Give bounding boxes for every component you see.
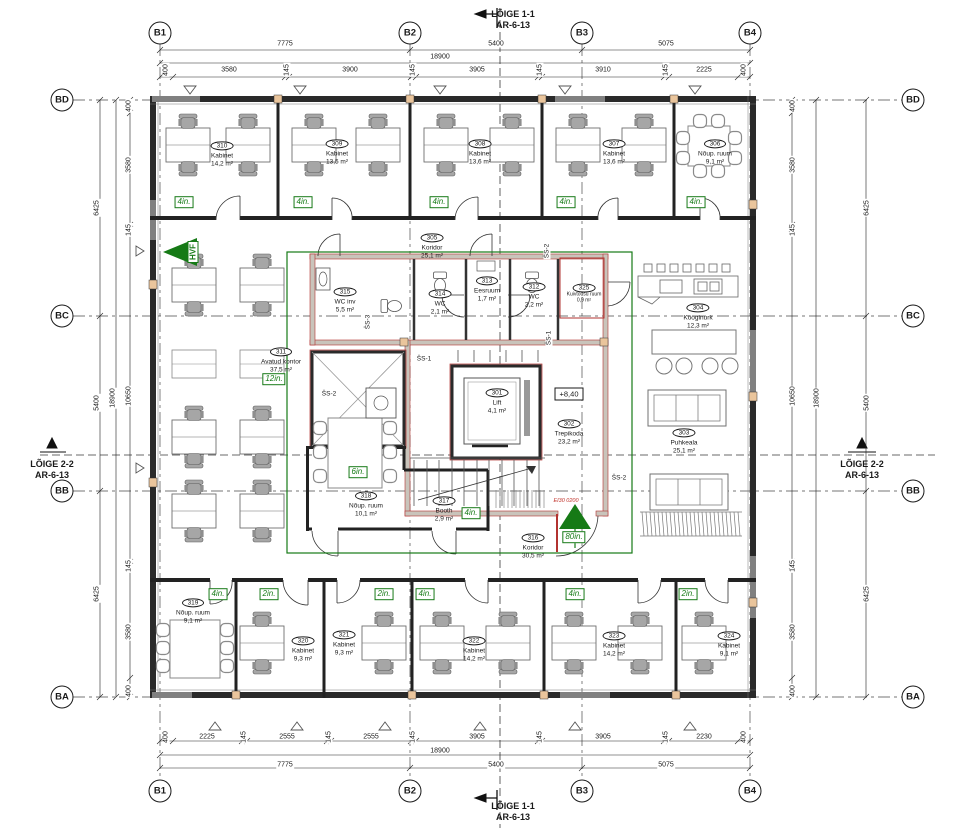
section-label-right: LÕIGE 2-2AR-6-13 (840, 459, 884, 482)
grid-bubble-ba-left: BA (51, 686, 74, 709)
room-label-315: 315WC inv5,5 m² (334, 280, 357, 313)
dim-label: 3580 (790, 156, 797, 174)
room-label-302: 302Trepikoda23,2 m² (555, 412, 584, 445)
dim-label: 400 (790, 684, 797, 698)
room-label-318: 318Nõup. ruum10,1 m² (349, 484, 383, 517)
occupancy-tag: 6in. (349, 466, 368, 478)
dim-label: 400 (741, 730, 748, 744)
dim-label: 2555 (278, 734, 296, 741)
dim-label: 7775 (276, 762, 294, 769)
hvf-marker: HVF (188, 241, 199, 263)
dim-label: 145 (126, 223, 133, 237)
room-label-312: 312WC2,2 m² (523, 275, 546, 308)
dim-label: 145 (241, 730, 248, 744)
dim-label: 145 (284, 63, 291, 77)
dim-label: 6425 (864, 199, 871, 217)
occupancy-tag: 2in. (375, 588, 394, 600)
room-label-325: 325Kuivtõusu ruum0,9 m² (567, 284, 602, 305)
dim-label: 145 (663, 730, 670, 744)
grid-bubble-bc-right: BC (902, 305, 925, 328)
dim-label: 3580 (126, 623, 133, 641)
room-label-319: 319Nõup. ruum9,1 m² (176, 591, 210, 624)
dim-label: 400 (126, 99, 133, 113)
dim-label: 2225 (198, 734, 216, 741)
dim-label: 6425 (94, 585, 101, 603)
room-label-313: 313Eesruum1,7 m² (474, 269, 500, 302)
room-label-324: 324Kabinet9,1 m² (718, 624, 741, 657)
grid-bubble-b4-top: B4 (739, 22, 762, 45)
dim-label: 5400 (487, 762, 505, 769)
grid-bubble-bd-left: BD (51, 89, 74, 112)
dim-label: 6425 (94, 199, 101, 217)
section-label-bottom: LÕIGE 1-1AR-6-13 (491, 801, 535, 824)
fire-rating-label: EI30 0200 (553, 498, 578, 504)
grid-bubble-b2-top: B2 (399, 22, 422, 45)
section-label-left: LÕIGE 2-2AR-6-13 (30, 459, 74, 482)
dim-label: 145 (126, 559, 133, 573)
dim-label: 3580 (126, 156, 133, 174)
room-label-307: 307Kabinet13,6 m² (603, 132, 626, 165)
grid-bubble-b4-bottom: B4 (739, 780, 762, 803)
room-label-316: 316Koridor30,5 m² (522, 526, 545, 559)
dim-label: 5075 (657, 41, 675, 48)
dim-label: 145 (663, 63, 670, 77)
dim-label: 6425 (864, 585, 871, 603)
dim-label: 7775 (276, 41, 294, 48)
room-label-306: 306Nõup. ruum9,1 m² (698, 132, 732, 165)
occupancy-tag: 4in. (430, 196, 449, 208)
dim-label: 5400 (487, 41, 505, 48)
dim-label: 3910 (594, 67, 612, 74)
section-label-top: LÕIGE 1-1AR-6-13 (491, 9, 535, 32)
room-label-304: 304Kööginurk12,3 m² (683, 296, 712, 329)
occupancy-tag: 4in. (175, 196, 194, 208)
dim-label: 145 (790, 559, 797, 573)
room-label-317: 317Booth2,9 m² (433, 489, 456, 522)
room-label-311: 311Avatud kontor37,5 m² (261, 340, 301, 373)
dim-label: 10650 (126, 385, 133, 406)
dim-label: 145 (537, 730, 544, 744)
dim-label: 3905 (468, 67, 486, 74)
dim-label: 145 (537, 63, 544, 77)
grid-bubble-b1-bottom: B1 (149, 780, 172, 803)
dim-label: 3580 (220, 67, 238, 74)
room-label-303: 303Puhkeala25,1 m² (670, 421, 697, 454)
occupancy-tag: 4in. (462, 507, 481, 519)
dim-label: 18900 (429, 748, 450, 755)
dim-label: 400 (163, 63, 170, 77)
occupancy-tag: 4in. (209, 588, 228, 600)
shaft-label: ŠS-1 (546, 330, 553, 346)
dim-label: 2230 (695, 734, 713, 741)
dim-label: 145 (410, 63, 417, 77)
shaft-label: ŠS-2 (321, 391, 337, 398)
level-marker: +8,40 (555, 388, 584, 401)
shaft-label: ŠS-1 (416, 356, 432, 363)
room-label-308: 308Kabinet13,6 m² (469, 132, 492, 165)
dim-label: 3580 (790, 623, 797, 641)
room-label-321: 321Kabinet9,3 m² (333, 623, 356, 656)
grid-bubble-bc-left: BC (51, 305, 74, 328)
dim-label: 5075 (657, 762, 675, 769)
occupancy-tag: 4in. (416, 588, 435, 600)
dim-label: 145 (790, 223, 797, 237)
occupancy-tag: 4in. (566, 588, 585, 600)
dim-label: 145 (326, 730, 333, 744)
dim-label: 400 (741, 63, 748, 77)
occupancy-tag: 4in. (294, 196, 313, 208)
grid-bubble-bb-left: BB (51, 480, 74, 503)
furniture-bottom-rooms (157, 612, 727, 678)
room-label-320: 320Kabinet9,3 m² (292, 629, 315, 662)
grid-bubble-bd-right: BD (902, 89, 925, 112)
floor-plan-drawing (0, 0, 975, 838)
grid-bubble-b1-top: B1 (149, 22, 172, 45)
room-label-323: 323Kabinet14,2 m² (603, 624, 626, 657)
dim-label: 145 (410, 730, 417, 744)
room-label-314: 314WC2,1 m² (429, 282, 452, 315)
dim-label: 5400 (864, 394, 871, 412)
dim-label: 10650 (790, 385, 797, 406)
occupancy-tag: 12in. (262, 373, 285, 385)
dim-label: 5400 (94, 394, 101, 412)
floor-plan-sheet: B1 B2 B3 B4 B1 B2 B3 B4 BD BC BB BA BD B… (0, 0, 975, 838)
room-label-301: 301Lift4,1 m² (486, 381, 509, 414)
furniture-open-office (172, 254, 284, 542)
dim-label: 18900 (814, 387, 821, 408)
grid-bubble-ba-right: BA (902, 686, 925, 709)
grid-bubble-b2-bottom: B2 (399, 780, 422, 803)
grid-bubble-b3-bottom: B3 (571, 780, 594, 803)
dim-label: 18900 (429, 54, 450, 61)
room-label-322: 322Kabinet14,2 m² (463, 629, 486, 662)
dim-label: 400 (126, 684, 133, 698)
dim-label: 2555 (362, 734, 380, 741)
exit-arrow-icon (559, 504, 591, 529)
dim-label: 3905 (594, 734, 612, 741)
grid-bubble-b3-top: B3 (571, 22, 594, 45)
occupancy-tag: 4in. (557, 196, 576, 208)
occupancy-tag: 2in. (679, 588, 698, 600)
dim-label: 400 (790, 99, 797, 113)
dim-label: 400 (163, 730, 170, 744)
occupancy-tag: 80in. (562, 531, 585, 543)
furniture-top-rooms (166, 114, 742, 178)
room-label-310: 310Kabinet14,2 m² (211, 134, 234, 167)
shaft-label: ŠS-3 (365, 314, 372, 330)
dim-label: 3905 (468, 734, 486, 741)
dim-label: 2225 (695, 67, 713, 74)
occupancy-tag: 2in. (260, 588, 279, 600)
dim-label: 3900 (341, 67, 359, 74)
room-label-309: 309Kabinet13,5 m² (326, 132, 349, 165)
shaft-label: ŠS-2 (544, 243, 551, 259)
dim-label: 18900 (110, 387, 117, 408)
grid-bubble-bb-right: BB (902, 480, 925, 503)
room-label-305: 305Koridor25,1 m² (421, 226, 444, 259)
occupancy-tag: 4in. (687, 196, 706, 208)
shaft-label: ŠS-2 (611, 475, 627, 482)
